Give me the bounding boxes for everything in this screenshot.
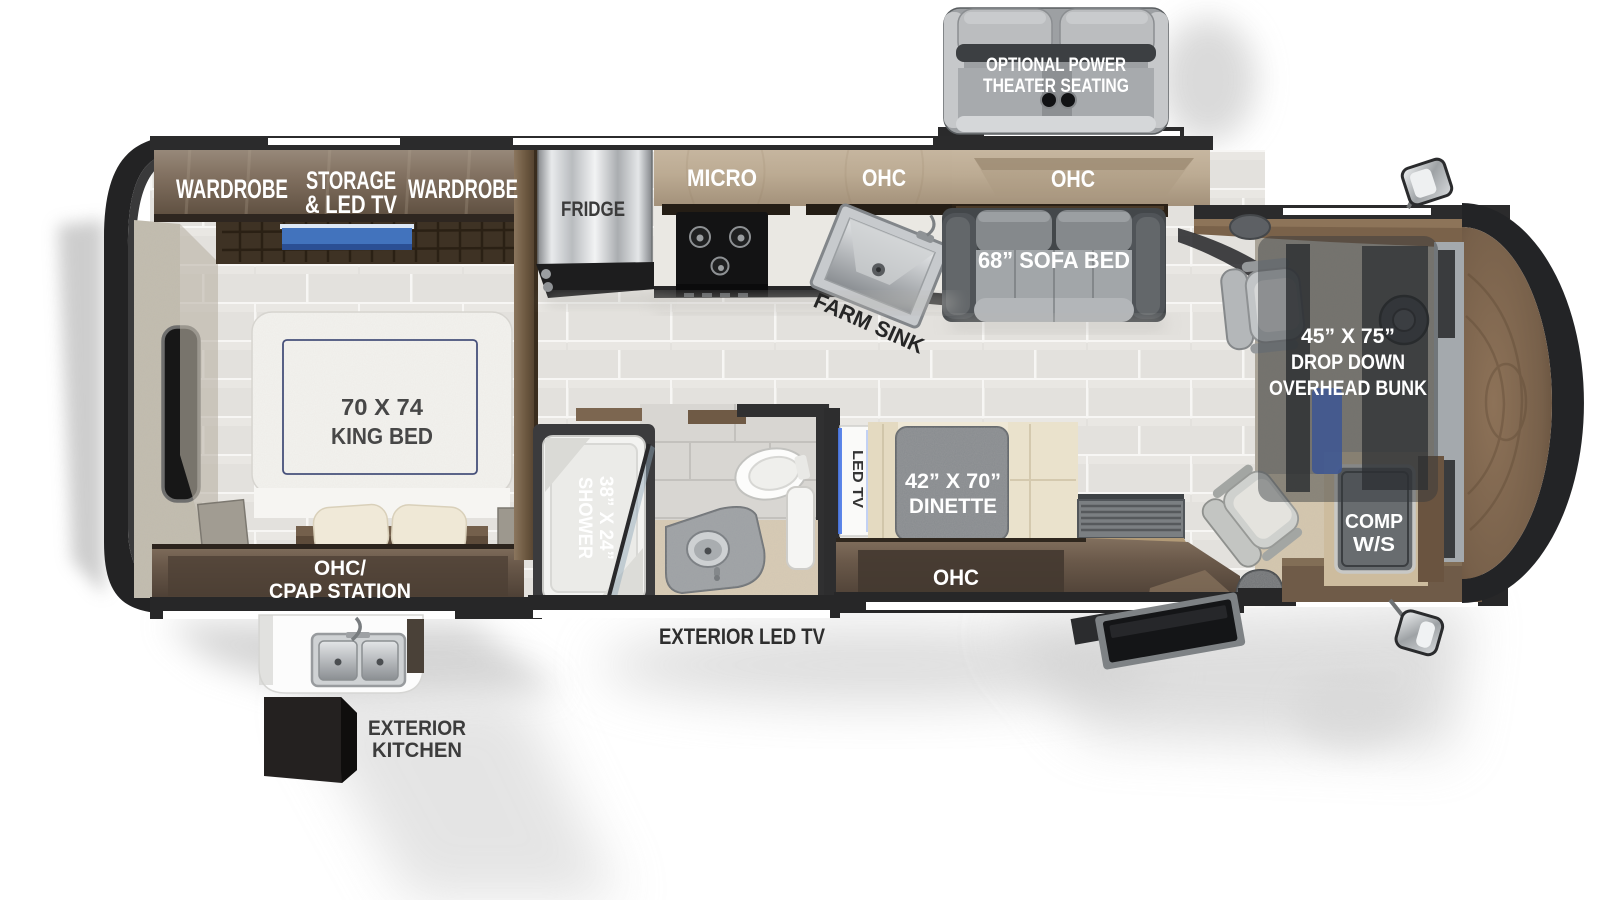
svg-text:DINETTE: DINETTE <box>909 495 997 518</box>
svg-text:DROP DOWN: DROP DOWN <box>1291 351 1405 374</box>
svg-text:KITCHEN: KITCHEN <box>372 739 462 762</box>
svg-text:OHC/: OHC/ <box>314 557 366 580</box>
svg-text:CPAP STATION: CPAP STATION <box>269 580 411 603</box>
svg-text:EXTERIOR LED TV: EXTERIOR LED TV <box>659 624 825 649</box>
svg-text:LED TV: LED TV <box>849 450 866 508</box>
svg-text:MICRO: MICRO <box>687 165 757 192</box>
svg-text:KING BED: KING BED <box>331 423 433 449</box>
svg-text:W/S: W/S <box>1353 534 1395 556</box>
svg-text:SHOWER: SHOWER <box>574 477 595 559</box>
svg-text:70 X 74: 70 X 74 <box>341 394 423 420</box>
svg-text:42” X 70”: 42” X 70” <box>905 470 1001 493</box>
svg-text:OHC: OHC <box>933 565 979 590</box>
svg-text:FRIDGE: FRIDGE <box>561 198 625 221</box>
svg-text:OHC: OHC <box>862 165 906 192</box>
svg-text:68” SOFA BED: 68” SOFA BED <box>978 247 1130 273</box>
svg-text:OHC: OHC <box>1051 166 1095 193</box>
svg-text:WARDROBE: WARDROBE <box>176 174 288 204</box>
svg-text:EXTERIOR: EXTERIOR <box>368 717 466 740</box>
svg-text:& LED TV: & LED TV <box>305 191 397 219</box>
svg-text:COMP: COMP <box>1345 511 1403 533</box>
svg-text:38” X 24”: 38” X 24” <box>595 476 616 560</box>
svg-text:OPTIONAL POWER: OPTIONAL POWER <box>986 55 1126 76</box>
svg-text:45” X 75”: 45” X 75” <box>1301 325 1395 348</box>
svg-text:OVERHEAD BUNK: OVERHEAD BUNK <box>1269 377 1427 400</box>
svg-text:WARDROBE: WARDROBE <box>408 174 518 204</box>
svg-text:THEATER SEATING: THEATER SEATING <box>983 76 1129 97</box>
